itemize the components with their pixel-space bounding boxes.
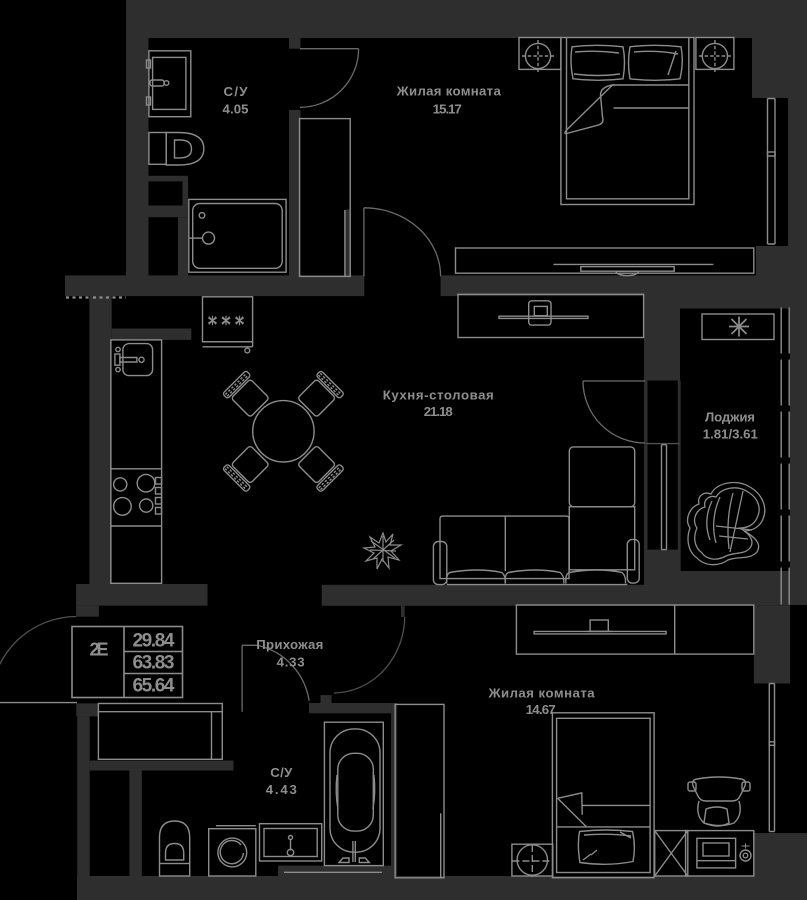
svg-text:21.18: 21.18 bbox=[424, 404, 453, 419]
svg-text:2Е: 2Е bbox=[90, 640, 109, 660]
svg-text:29.84: 29.84 bbox=[133, 631, 175, 652]
svg-text:63.83: 63.83 bbox=[133, 653, 175, 674]
svg-text:15.17: 15.17 bbox=[433, 102, 462, 117]
svg-text:Лоджия: Лоджия bbox=[705, 410, 755, 425]
svg-text:Кухня-столовая: Кухня-столовая bbox=[383, 388, 494, 403]
svg-text:4.33: 4.33 bbox=[277, 655, 305, 670]
svg-text:1.81/3.61: 1.81/3.61 bbox=[703, 427, 758, 442]
svg-text:С/У: С/У bbox=[224, 84, 249, 99]
svg-text:Жилая комната: Жилая комната bbox=[396, 84, 502, 99]
svg-text:Жилая комната: Жилая комната bbox=[488, 686, 596, 701]
svg-text:65.64: 65.64 bbox=[133, 676, 175, 697]
svg-text:4.43: 4.43 bbox=[266, 782, 297, 797]
svg-text:14.67: 14.67 bbox=[526, 702, 556, 717]
svg-text:Прихожая: Прихожая bbox=[256, 637, 323, 652]
svg-text:С/У: С/У bbox=[270, 765, 293, 780]
svg-text:4.05: 4.05 bbox=[223, 102, 249, 117]
